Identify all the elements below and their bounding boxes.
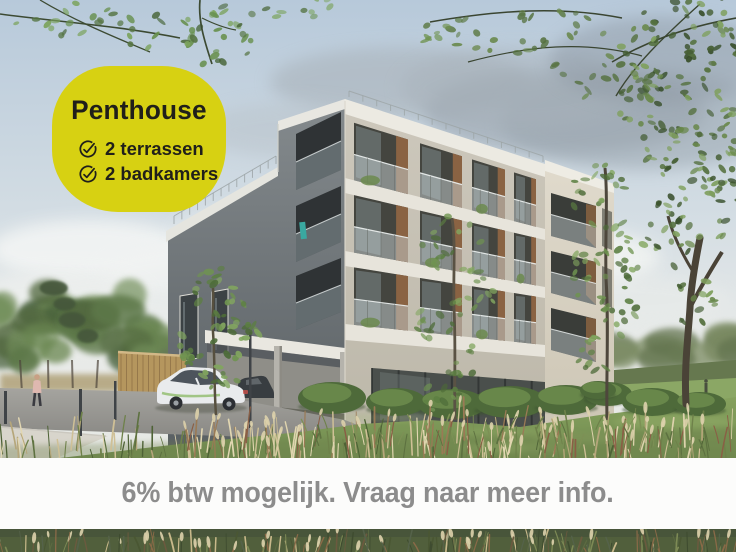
feature-item: 2 terrassen bbox=[78, 138, 204, 160]
check-circle-icon bbox=[78, 164, 98, 184]
feature-item: 2 badkamers bbox=[78, 163, 218, 185]
feature-label: 2 badkamers bbox=[105, 163, 218, 185]
check-circle-icon bbox=[78, 139, 98, 159]
feature-label: 2 terrassen bbox=[105, 138, 204, 160]
penthouse-badge: Penthouse 2 terrassen 2 badkamers bbox=[52, 66, 226, 212]
promo-image: Penthouse 2 terrassen 2 badkamers 6% btw… bbox=[0, 0, 736, 552]
banner-text: 6% btw mogelijk. Vraag naar meer info. bbox=[122, 477, 614, 510]
info-banner: 6% btw mogelijk. Vraag naar meer info. bbox=[0, 458, 736, 529]
badge-title: Penthouse bbox=[71, 95, 207, 126]
